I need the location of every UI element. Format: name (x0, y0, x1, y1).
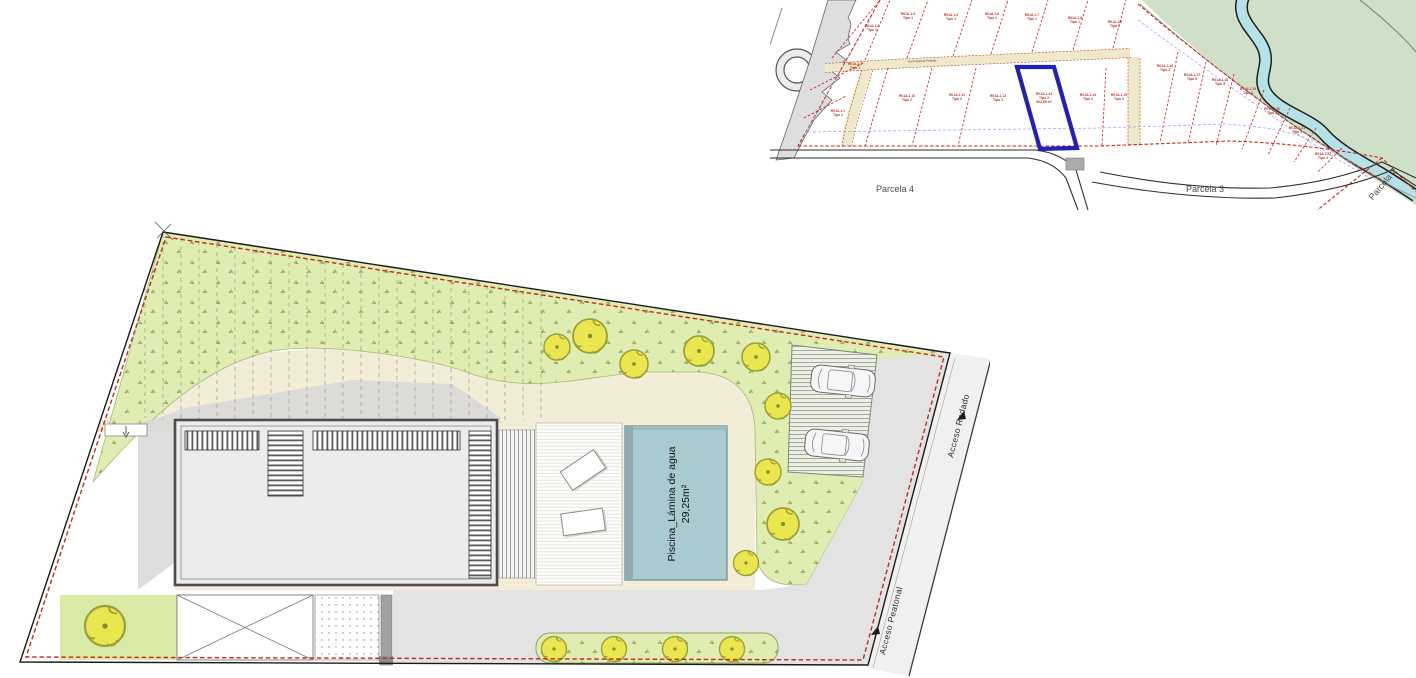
tree (542, 637, 567, 662)
highlighted-lot-label: R01A.1.13Tipo 2602,85 m² (1036, 92, 1053, 104)
skylight-band-1 (185, 431, 259, 450)
gravel-area (315, 595, 379, 660)
svg-text:R01A.1.1Tipo 1: R01A.1.1Tipo 1 (831, 109, 845, 117)
svg-text:R01A.1.16Tipo 3: R01A.1.16Tipo 3 (1157, 64, 1173, 72)
tree (602, 637, 627, 662)
tree (720, 637, 745, 662)
architectural-drawing-canvas: R01A.1.1Tipo 1 R01A.1.2Tipo 1 R01A.1.3Ti… (0, 0, 1416, 678)
svg-text:R01A.1.17Tipo 3: R01A.1.17Tipo 3 (1184, 73, 1200, 81)
highlighted-lot-outline (1017, 67, 1077, 149)
svg-text:R01A.1.4Tipo 1: R01A.1.4Tipo 1 (901, 12, 915, 20)
skylight-band-3 (313, 431, 460, 450)
svg-text:R01A.1.14Tipo 2: R01A.1.14Tipo 2 (1080, 93, 1096, 101)
svg-text:R01A.1.6Tipo 1: R01A.1.6Tipo 1 (985, 12, 999, 20)
entry-wall (381, 595, 392, 665)
tree (85, 606, 125, 646)
pool-area-label: 29,25m² (680, 484, 692, 523)
svg-text:R01A.1.15Tipo 2: R01A.1.15Tipo 2 (1111, 93, 1127, 101)
house (175, 420, 497, 585)
svg-text:R01A.1.8Tipo 1: R01A.1.8Tipo 1 (1068, 16, 1082, 24)
parcela-3-label: Parcela 3 (1186, 184, 1224, 194)
svg-text:R01A.1.12Tipo 2: R01A.1.12Tipo 2 (990, 94, 1006, 102)
svg-text:R01A.1.9Tipo 1: R01A.1.9Tipo 1 (1108, 20, 1122, 28)
louvre-strip (499, 430, 538, 578)
site-plan: Piscina_Lámina de agua 29,25m² Acceso Ro… (5, 218, 990, 678)
entry-walkway (105, 424, 147, 437)
svg-text:R01A.1.5Tipo 1: R01A.1.5Tipo 1 (944, 13, 958, 21)
pool: Piscina_Lámina de agua 29,25m² (625, 426, 727, 580)
svg-text:R01A.1.7Tipo 1: R01A.1.7Tipo 1 (1025, 13, 1039, 21)
svg-text:R01A.1.18Tipo 3: R01A.1.18Tipo 3 (1212, 78, 1228, 86)
svg-text:R01A.1.11Tipo 2: R01A.1.11Tipo 2 (949, 93, 965, 101)
driveway-pad (1066, 158, 1084, 170)
svg-text:R01A.1.10Tipo 2: R01A.1.10Tipo 2 (899, 94, 915, 102)
svg-text:R01A.1.22Tipo 3: R01A.1.22Tipo 3 (1315, 152, 1331, 160)
wood-deck (536, 423, 622, 585)
skylight-band-2 (268, 431, 303, 496)
tree (663, 637, 688, 662)
key-plan: R01A.1.1Tipo 1 R01A.1.2Tipo 1 R01A.1.3Ti… (770, 0, 1416, 210)
parcela-4-label: Parcela 4 (876, 184, 914, 194)
pool-label: Piscina_Lámina de agua (666, 446, 678, 561)
skylight-band-4 (469, 431, 491, 578)
